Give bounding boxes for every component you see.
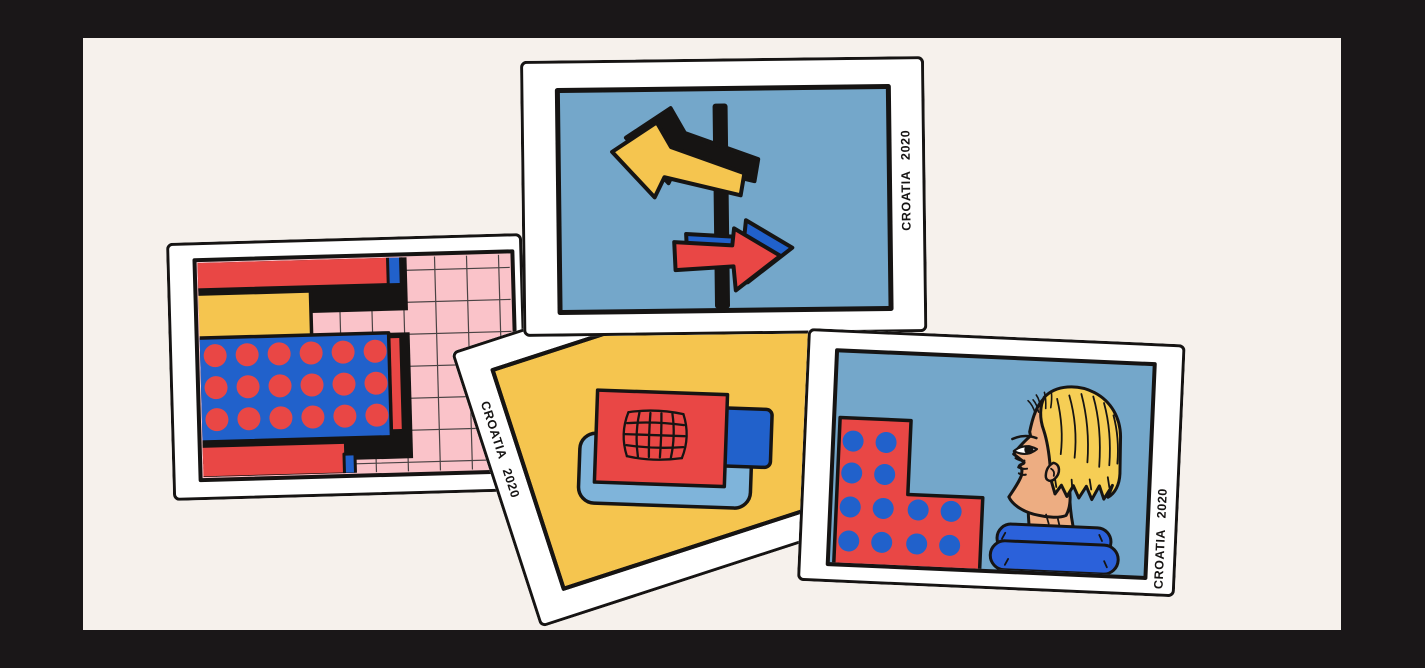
signpost-illustration — [520, 56, 927, 337]
portrait-illustration — [797, 328, 1186, 597]
signpost-pole — [713, 103, 731, 308]
blue-end-cap-bottom — [344, 454, 356, 474]
blue-scarf — [990, 523, 1120, 575]
polka-dot-building — [197, 333, 392, 442]
blue-end-cap-top — [387, 254, 401, 284]
red-bar-bottom — [200, 442, 347, 478]
postcard-portrait: CROATIA 2020 — [797, 328, 1186, 597]
postcard-signpost: CROATIA 2020 — [520, 56, 927, 337]
postcards-illustration: CROATIA 2020 CROATIA 2020 — [0, 0, 1425, 668]
yellow-block — [195, 291, 311, 340]
building-blocks — [194, 254, 413, 478]
